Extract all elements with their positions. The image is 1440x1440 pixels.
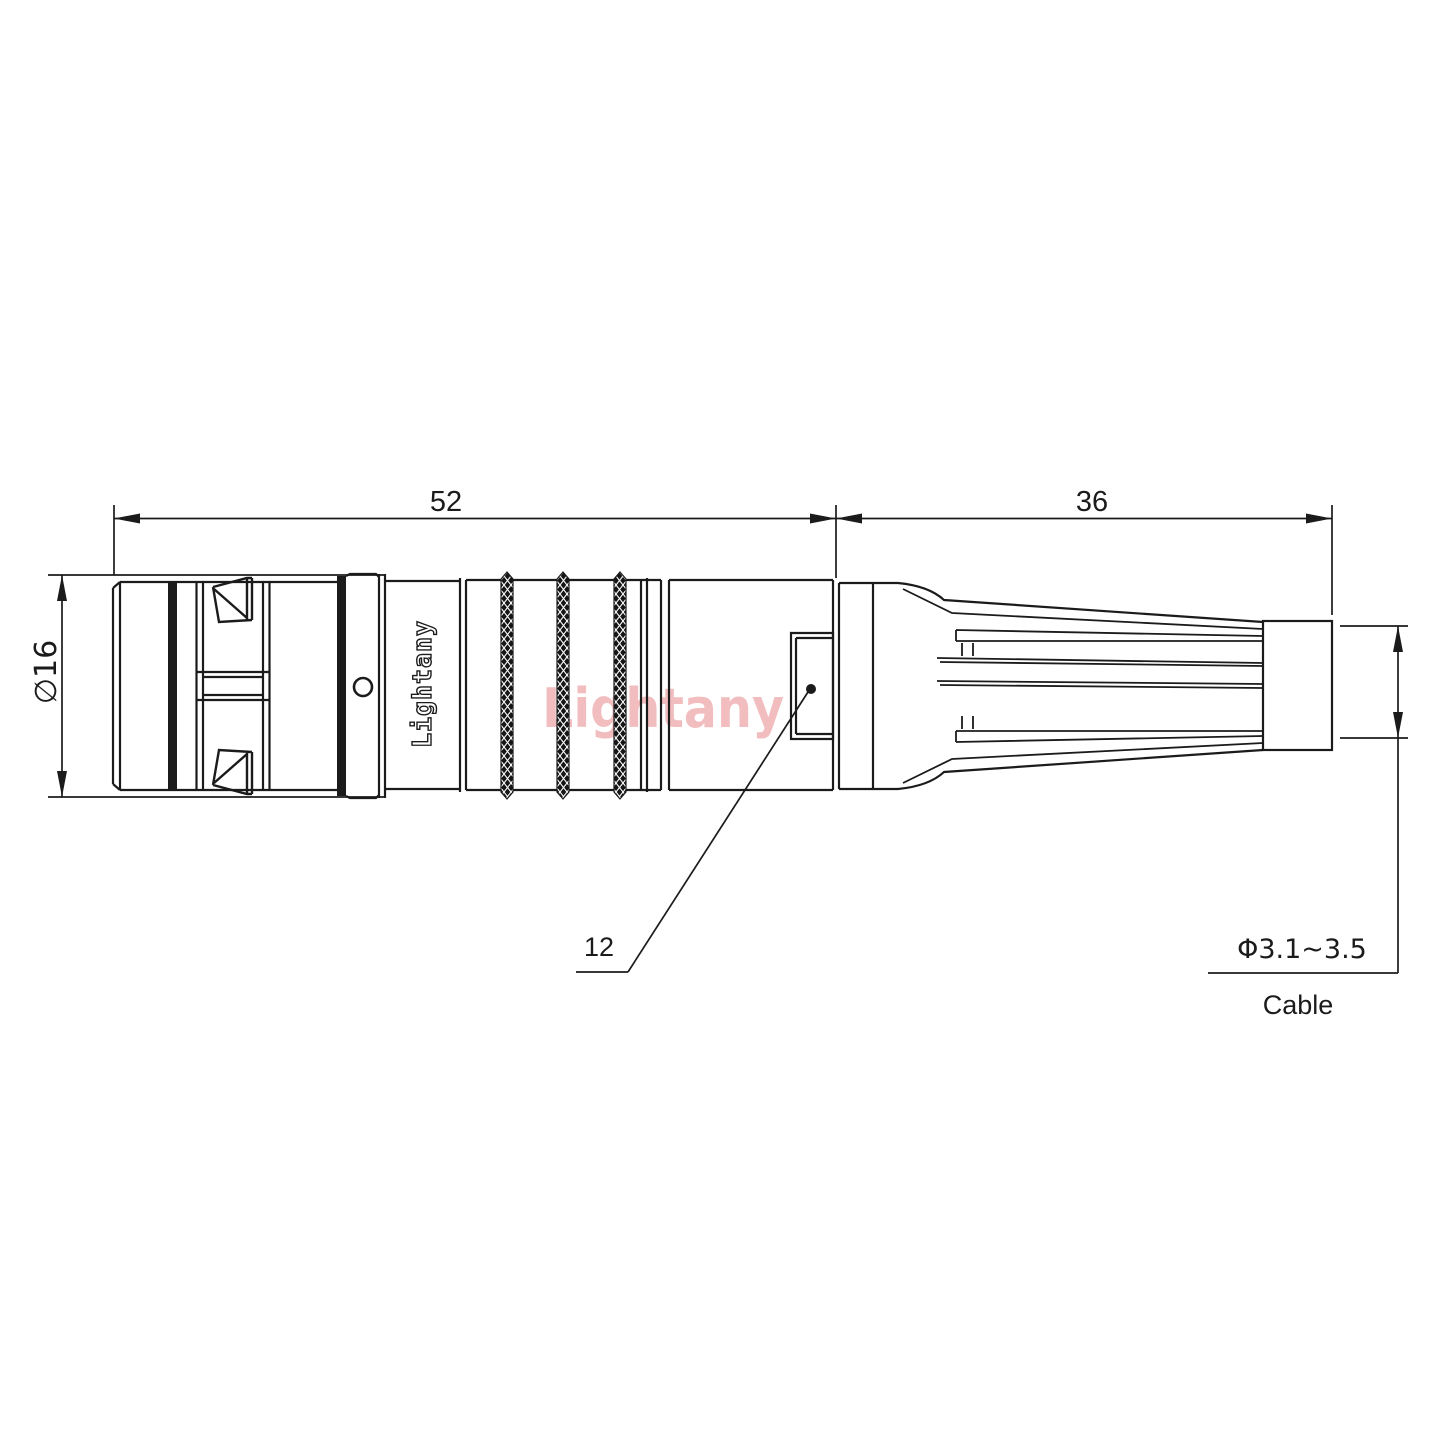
ring-dark-band [337,576,346,796]
label-12-leader-dot [806,684,816,694]
watermark-text: Lightany [542,677,784,740]
technical-drawing-page: Lightany 52 36 ∅16 [0,0,1440,1440]
cable-word-label: Cable [1263,990,1334,1020]
cable-range-label: Φ3.1~3.5 [1237,934,1367,965]
dim-16-label: ∅16 [29,640,64,704]
label-12-text: 12 [584,932,614,962]
knurl-strip [614,572,626,799]
connector-dimension-drawing: Lightany 52 36 ∅16 [0,0,1440,1440]
plug-dark-band [168,582,177,790]
knurl-strip [501,572,513,799]
dim-36-label: 36 [1076,486,1108,518]
knurl-strip [557,572,569,799]
dim-52-label: 52 [430,486,462,518]
barrel-brand-text: Lightany [408,620,438,748]
